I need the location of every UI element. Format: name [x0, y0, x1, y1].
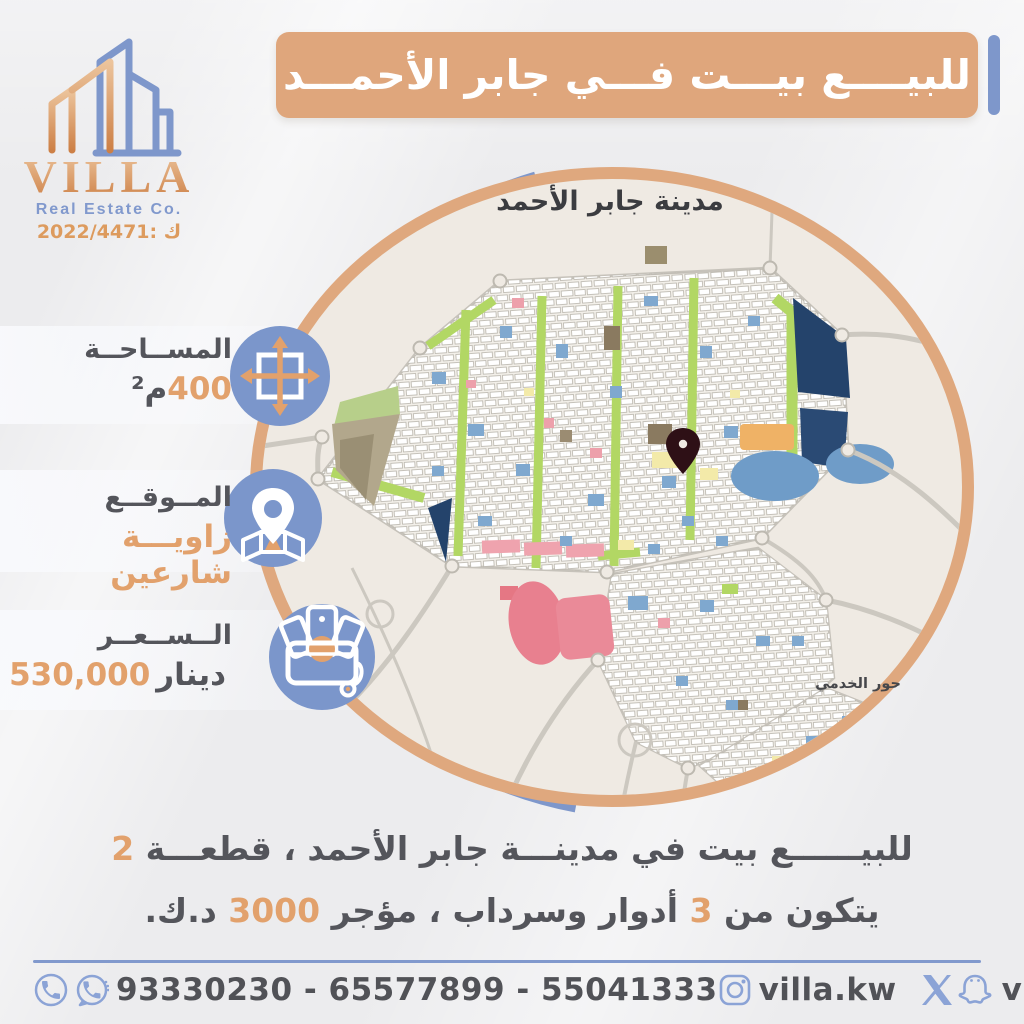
- brand-tagline: Real Estate Co.: [36, 201, 182, 218]
- info-area: المســاحــة 400م²: [0, 334, 232, 407]
- info-location: المــوقــع زاويـــة شارعين: [0, 482, 232, 591]
- badge-area: [230, 326, 330, 426]
- area-value: 400م²: [0, 371, 232, 407]
- brand-building-icon: [38, 42, 178, 153]
- brand-logo: VILLA Real Estate Co. 2022/4471: ك: [12, 12, 204, 244]
- property-description: للبيــــــع بيت في مدينـــة جابر الأحمد …: [50, 818, 974, 942]
- real-estate-poster: { "brand": { "name": "VILLA", "tagline":…: [0, 0, 1024, 1024]
- badge-price: [269, 604, 375, 710]
- instagram-icon: [718, 973, 752, 1007]
- area-label: المســاحــة: [0, 334, 232, 365]
- money-wallet-icon: [280, 607, 364, 696]
- price-value: 530,000دينار: [0, 657, 232, 693]
- whatsapp-icon: [75, 973, 109, 1007]
- instagram-handle: villa.kw: [759, 972, 897, 1008]
- social-handle: villa_kw: [1002, 972, 1024, 1008]
- description-line-1: للبيــــــع بيت في مدينـــة جابر الأحمد …: [50, 818, 974, 880]
- header-title: للبيــــع بيـــت فـــي جابر الأحمـــد: [283, 51, 971, 99]
- brand-license: 2022/4471: ك: [37, 221, 181, 243]
- snapchat-icon: [955, 971, 995, 1009]
- x-twitter-icon: [918, 972, 954, 1008]
- header-banner: للبيــــع بيـــت فـــي جابر الأحمـــد: [276, 32, 978, 118]
- brand-name: VILLA: [24, 151, 195, 202]
- description-line-2: يتكون من 3 أدوار وسرداب ، مؤجر 3000 د.ك.: [50, 880, 974, 942]
- footer-social-group: villa.kw villa_kw: [718, 971, 1024, 1009]
- banner-accent-bar: [988, 35, 1000, 115]
- location-value: زاويـــة شارعين: [0, 519, 232, 591]
- badge-location: [224, 469, 322, 567]
- map-title: مدينة جابر الأحمد: [460, 186, 760, 217]
- phone-numbers: 93330230 - 65577899 - 55041333: [116, 972, 718, 1008]
- map-district-label: حور الخدمي: [792, 676, 924, 692]
- footer: 93330230 - 65577899 - 55041333 villa.kw …: [0, 963, 1024, 1017]
- info-price: الــســعــر 530,000دينار: [0, 620, 232, 693]
- price-label: الــســعــر: [0, 620, 232, 651]
- location-label: المــوقــع: [0, 482, 232, 513]
- phone-icon: [34, 973, 68, 1007]
- footer-phones-group: 93330230 - 65577899 - 55041333: [34, 972, 718, 1008]
